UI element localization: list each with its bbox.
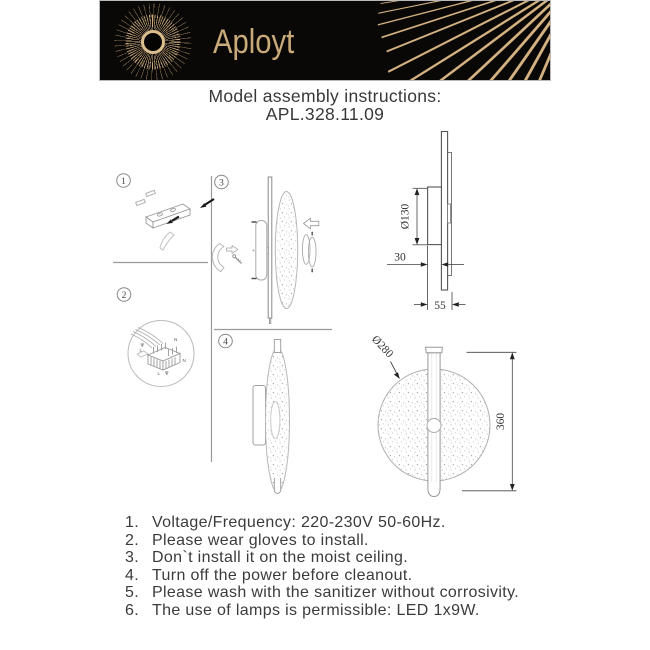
dimension-label-130: Ø130: [400, 203, 412, 229]
step1-bracket-drawing: [136, 190, 214, 250]
dimension-label-360: 360: [495, 413, 507, 431]
list-item: 2. Please wear gloves to install.: [125, 532, 575, 550]
item-text: Voltage/Frequency: 220-230V 50-60Hz.: [152, 514, 575, 532]
step1-number: 1: [121, 177, 126, 187]
tool-and-screw: [212, 244, 241, 272]
item-text: Please wash with the sanitizer without c…: [152, 584, 575, 602]
item-number: 4.: [125, 567, 152, 585]
item-text: Please wear gloves to install.: [152, 532, 575, 550]
front-view-drawing: Ø280 360: [369, 334, 516, 497]
step3-marker: 3: [215, 175, 229, 189]
dimension-label-280: Ø280: [369, 334, 395, 361]
glass-shade-side: [275, 192, 297, 309]
item-text: The use of lamps is permissible: LED 1x9…: [152, 602, 575, 620]
item-text: Turn off the power before cleanout.: [152, 567, 575, 585]
item-number: 1.: [125, 514, 152, 532]
step3-exploded-view: [212, 177, 318, 324]
item-number: 2.: [125, 532, 152, 550]
dim-depth-30: 30: [387, 252, 464, 267]
ground-symbol-left: [141, 344, 145, 346]
instruction-list: 1. Voltage/Frequency: 220-230V 50-60Hz. …: [125, 514, 575, 619]
side-view-drawing: Ø130 30 55: [387, 132, 466, 313]
step2-wiring-detail: N L N L: [128, 321, 194, 387]
step4-assembled-view: [253, 340, 290, 494]
item-number: 5.: [125, 584, 152, 602]
item-number: 3.: [125, 549, 152, 567]
step1-marker: 1: [117, 174, 131, 188]
wires: [131, 328, 163, 349]
dim-diameter-130: Ø130: [400, 188, 428, 245]
wiring-label-n-right: N: [183, 358, 186, 363]
ground-symbol-bottom: [165, 372, 169, 374]
step2-marker: 2: [117, 288, 131, 302]
decor-ring-part: [302, 232, 316, 273]
wiring-label-n-top: N: [174, 337, 177, 342]
step4-marker: 4: [219, 334, 233, 348]
direction-arrow-icon: [304, 218, 319, 229]
list-item: 3. Don`t install it on the moist ceiling…: [125, 549, 575, 567]
step3-number: 3: [219, 179, 224, 189]
list-item: 1. Voltage/Frequency: 220-230V 50-60Hz.: [125, 514, 575, 532]
wall-bracket: [253, 386, 266, 446]
dimension-label-30: 30: [394, 252, 406, 264]
item-number: 6.: [125, 602, 152, 620]
dimension-label-55: 55: [434, 300, 446, 312]
mounting-bar: [268, 177, 272, 318]
step4-number: 4: [223, 338, 228, 348]
item-text: Don`t install it on the moist ceiling.: [152, 549, 575, 567]
list-item: 6. The use of lamps is permissible: LED …: [125, 602, 575, 620]
instruction-sheet: Aployt Model assembly instructions:: [0, 0, 650, 650]
wall-plate-side: [252, 221, 267, 281]
dim-diameter-280: Ø280: [369, 334, 400, 379]
dim-total-depth-55: 55: [414, 246, 466, 313]
list-item: 5. Please wash with the sanitizer withou…: [125, 584, 575, 602]
hook-part: [160, 232, 174, 250]
step2-number: 2: [122, 291, 127, 301]
wiring-label-l-bottom: L: [158, 371, 161, 376]
list-item: 4. Turn off the power before cleanout.: [125, 567, 575, 585]
terminal-block: [148, 343, 180, 371]
